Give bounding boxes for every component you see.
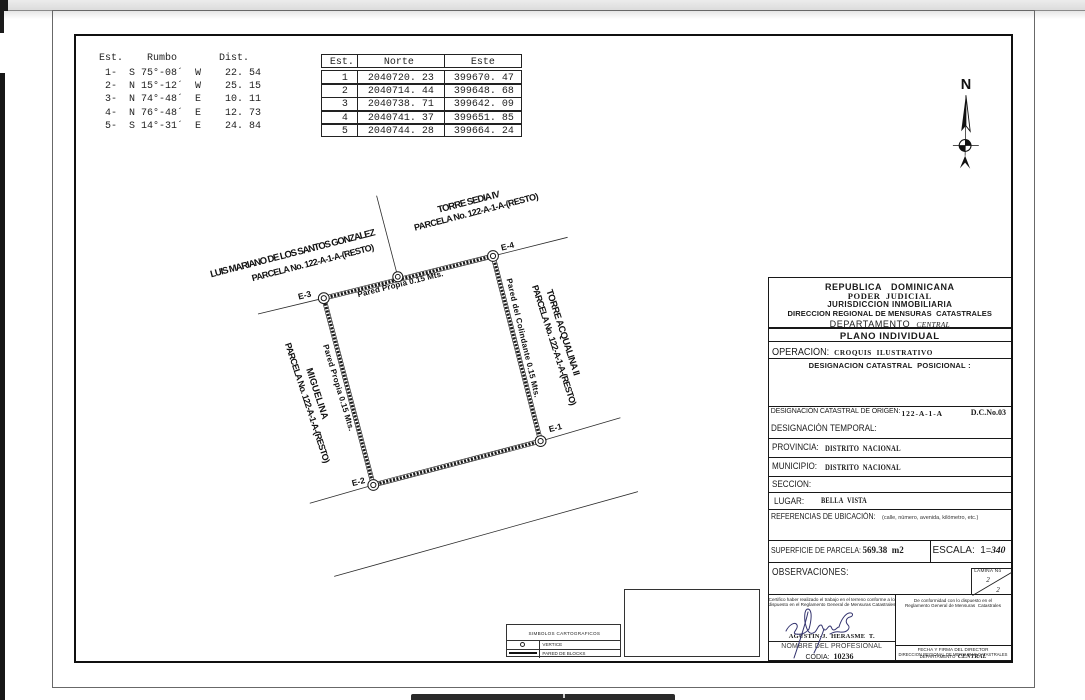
svg-text:E-2: E-2 (351, 475, 367, 488)
svg-text:N: N (961, 77, 971, 93)
svg-text:E-1: E-1 (548, 421, 564, 434)
svg-text:E-3: E-3 (297, 289, 313, 302)
